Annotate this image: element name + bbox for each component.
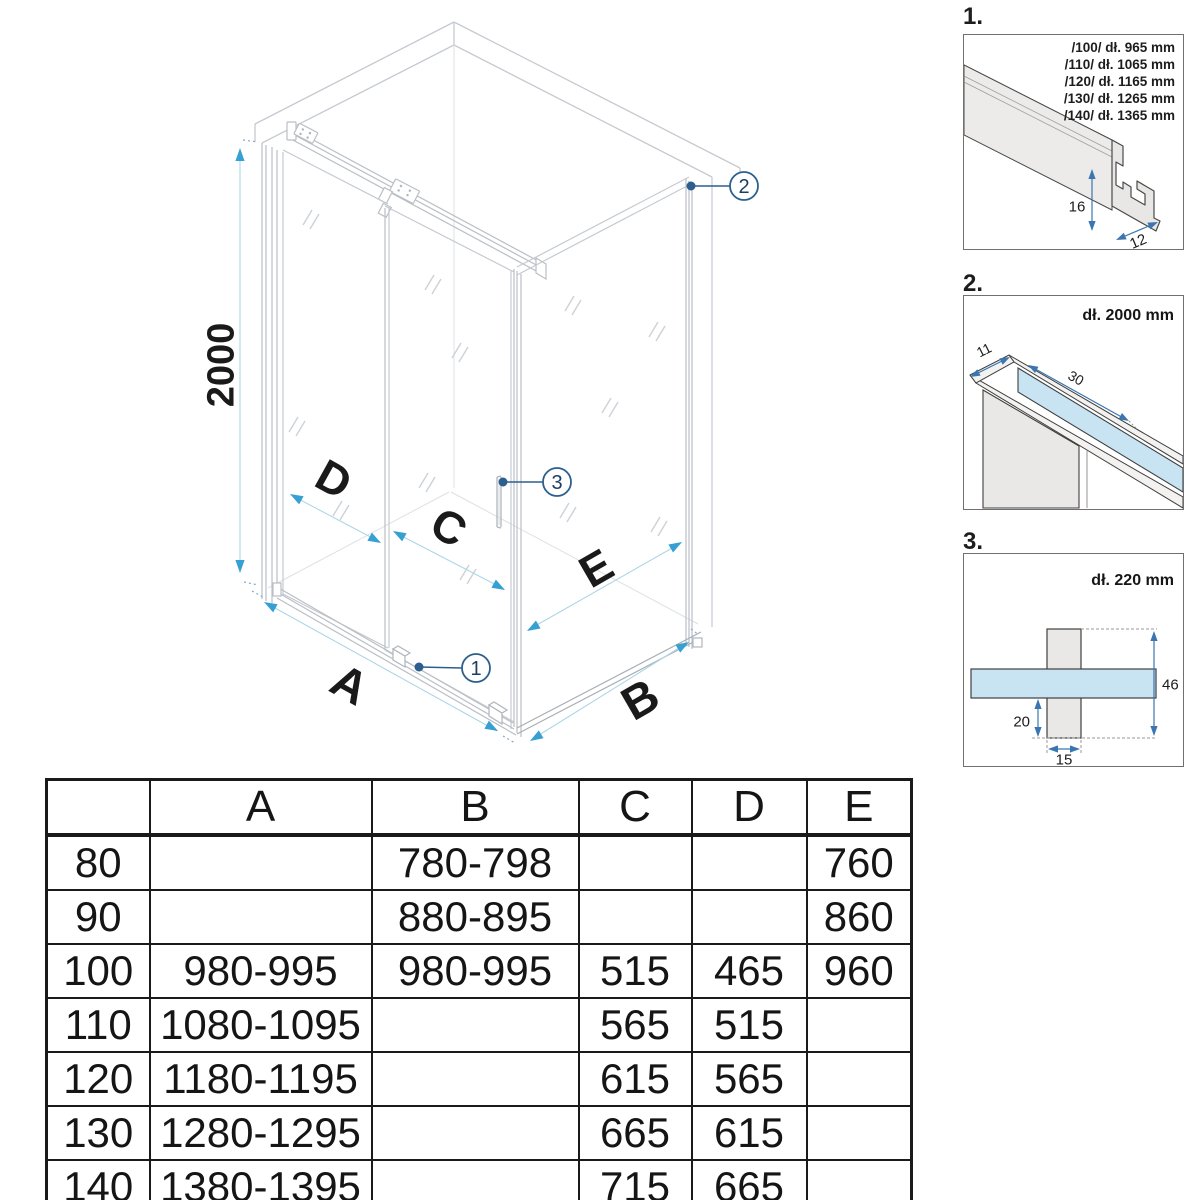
table-cell — [150, 835, 372, 890]
detail-1-dim-12: 12 — [1115, 219, 1160, 249]
detail-1-length-line: /130/ dł. 1265 mm — [1064, 90, 1175, 107]
table-cell: 980-995 — [150, 944, 372, 998]
table-cell: 880-895 — [372, 890, 579, 944]
detail-1-length-line: /110/ dł. 1065 mm — [1064, 56, 1175, 73]
roller-carriage-left — [294, 123, 318, 143]
detail-2-dim-11-label: 11 — [974, 339, 994, 360]
table-cell — [692, 835, 807, 890]
isometric-drawing: 2000 A B C D — [0, 0, 960, 775]
room-walls — [255, 22, 740, 186]
glass-bar — [971, 669, 1156, 698]
detail-1-dim-16-label: 16 — [1069, 198, 1086, 215]
table-row: 100980-995980-995515465960 — [47, 944, 912, 998]
callout-2-number: 2 — [738, 176, 749, 198]
table-cell: 110 — [47, 998, 150, 1052]
detail-1-label: 1. — [963, 3, 983, 31]
callout-3-number: 3 — [551, 472, 562, 494]
table-cell: 565 — [692, 1052, 807, 1106]
table-row: 1401380-1395715665 — [47, 1160, 912, 1200]
dimension-table-body: 80780-79876090880-895860100980-995980-99… — [47, 835, 912, 1200]
table-cell: 515 — [579, 944, 692, 998]
table-cell: 120 — [47, 1052, 150, 1106]
table-cell: 980-995 — [372, 944, 579, 998]
table-cell: 1380-1395 — [150, 1160, 372, 1200]
table-cell: 860 — [807, 890, 912, 944]
table-cell: 1280-1295 — [150, 1106, 372, 1160]
table-cell: 665 — [692, 1160, 807, 1200]
door-guide-block — [393, 646, 410, 667]
table-cell — [579, 835, 692, 890]
table-header-cell: C — [579, 780, 692, 836]
dimension-table-wrap: ABCDE 80780-79876090880-895860100980-995… — [45, 778, 913, 1200]
wall-profile-left — [262, 143, 283, 603]
detail-3-dim-15: 15 — [1048, 745, 1080, 766]
detail-2-title: dł. 2000 mm — [1082, 307, 1174, 325]
detail-2-label: 2. — [963, 270, 983, 298]
table-cell: 715 — [579, 1160, 692, 1200]
table-cell: 515 — [692, 998, 807, 1052]
table-cell — [372, 998, 579, 1052]
table-header-row: ABCDE — [47, 780, 912, 836]
dim-2000-label: 2000 — [200, 323, 242, 408]
dim-C-label: C — [422, 497, 475, 557]
cross-profile — [971, 629, 1156, 738]
dimension-table-head: ABCDE — [47, 780, 912, 836]
table-header-cell: D — [692, 780, 807, 836]
table-cell: 1080-1095 — [150, 998, 372, 1052]
detail-1-length-line: /140/ dł. 1365 mm — [1064, 107, 1175, 124]
table-cell: 780-798 — [372, 835, 579, 890]
detail-1-length-line: /100/ dł. 965 mm — [1064, 39, 1175, 56]
dim-E-label: E — [570, 539, 621, 598]
detail-3-title: dł. 220 mm — [1091, 572, 1174, 590]
room-corner-and-floor-lines — [268, 45, 698, 624]
table-cell: 90 — [47, 890, 150, 944]
table-row: 80780-798760 — [47, 835, 912, 890]
table-row: 1301280-1295665615 — [47, 1106, 912, 1160]
callout-1-number: 1 — [470, 658, 481, 680]
table-cell: 100 — [47, 944, 150, 998]
dim-D-label: D — [307, 449, 360, 509]
dimension-D: D — [288, 449, 383, 547]
table-cell: 130 — [47, 1106, 150, 1160]
dimension-C: C — [391, 497, 507, 594]
table-row: 90880-895860 — [47, 890, 912, 944]
detail-2-dim-30-label: 30 — [1065, 367, 1087, 389]
table-cell — [372, 1052, 579, 1106]
table-cell: 615 — [692, 1106, 807, 1160]
table-cell: 80 — [47, 835, 150, 890]
table-cell: 1180-1195 — [150, 1052, 372, 1106]
detail-3-label: 3. — [963, 528, 983, 556]
callout-2: 2 — [687, 172, 759, 200]
table-cell: 665 — [579, 1106, 692, 1160]
detail-2-drawing: 11 30 — [964, 296, 1183, 509]
table-cell — [579, 890, 692, 944]
table-header-cell: B — [372, 780, 579, 836]
table-cell: 465 — [692, 944, 807, 998]
table-cell — [807, 998, 912, 1052]
table-cell — [807, 1106, 912, 1160]
table-cell — [150, 890, 372, 944]
callout-3: 3 — [499, 468, 572, 496]
top-rail — [287, 122, 546, 279]
detail-2-box: 11 30 dł. 2000 mm — [963, 295, 1184, 510]
table-cell — [807, 1052, 912, 1106]
detail-3-box: 46 20 15 dł. 220 mm — [963, 553, 1184, 767]
dim-B-label: B — [612, 668, 668, 731]
dimension-height-2000: 2000 — [200, 140, 258, 585]
table-cell: 760 — [807, 835, 912, 890]
detail-3-dim-46-label: 46 — [1162, 676, 1179, 693]
detail-1-box: 16 12 /100/ dł. 965 mm/110/ dł. 1065 mm/… — [963, 34, 1184, 250]
detail-3-dim-20-label: 20 — [1013, 713, 1030, 730]
dimension-E: E — [525, 538, 685, 635]
dim-A-label: A — [322, 653, 377, 716]
table-cell: 960 — [807, 944, 912, 998]
dimension-table: ABCDE 80780-79876090880-895860100980-995… — [45, 778, 913, 1200]
side-panel — [517, 177, 712, 737]
table-cell: 565 — [579, 998, 692, 1052]
detail-1-length-list: /100/ dł. 965 mm/110/ dł. 1065 mm/120/ d… — [1064, 39, 1175, 124]
fixed-panel — [283, 150, 388, 648]
table-cell — [372, 1160, 579, 1200]
table-header-cell — [47, 780, 150, 836]
detail-3-dim-15-label: 15 — [1056, 751, 1073, 766]
table-cell — [807, 1160, 912, 1200]
spec-sheet-page: 2000 A B C D — [0, 0, 1200, 1200]
detail-3-dim-20: 20 — [1013, 699, 1041, 737]
table-cell: 140 — [47, 1160, 150, 1200]
table-header-cell: E — [807, 780, 912, 836]
glass-hatches — [289, 210, 667, 584]
table-cell — [372, 1106, 579, 1160]
table-row: 1201180-1195615565 — [47, 1052, 912, 1106]
table-row: 1101080-1095565515 — [47, 998, 912, 1052]
detail-1-length-line: /120/ dł. 1165 mm — [1064, 73, 1175, 90]
table-header-cell: A — [150, 780, 372, 836]
table-cell: 615 — [579, 1052, 692, 1106]
table-cell — [692, 890, 807, 944]
